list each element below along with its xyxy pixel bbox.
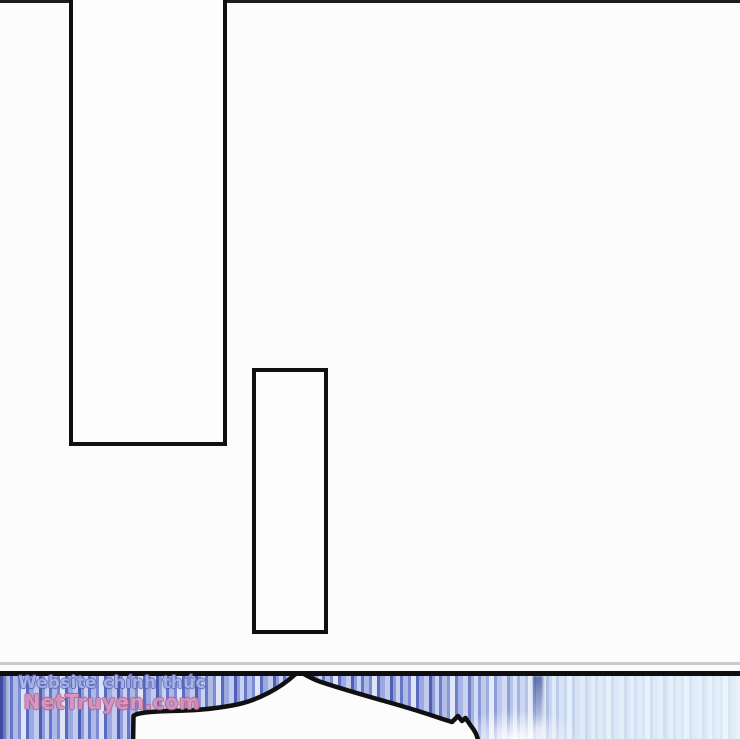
speech-balloon-rect-small (252, 368, 328, 634)
speech-bubble-shape (0, 671, 740, 739)
speech-balloon-rect-large (69, 0, 227, 446)
striped-action-panel (0, 671, 740, 739)
comic-page: Website chính thức NetTruyen.com (0, 0, 740, 739)
panel-divider-line (0, 662, 740, 665)
speech-bubble-outline (133, 674, 480, 739)
